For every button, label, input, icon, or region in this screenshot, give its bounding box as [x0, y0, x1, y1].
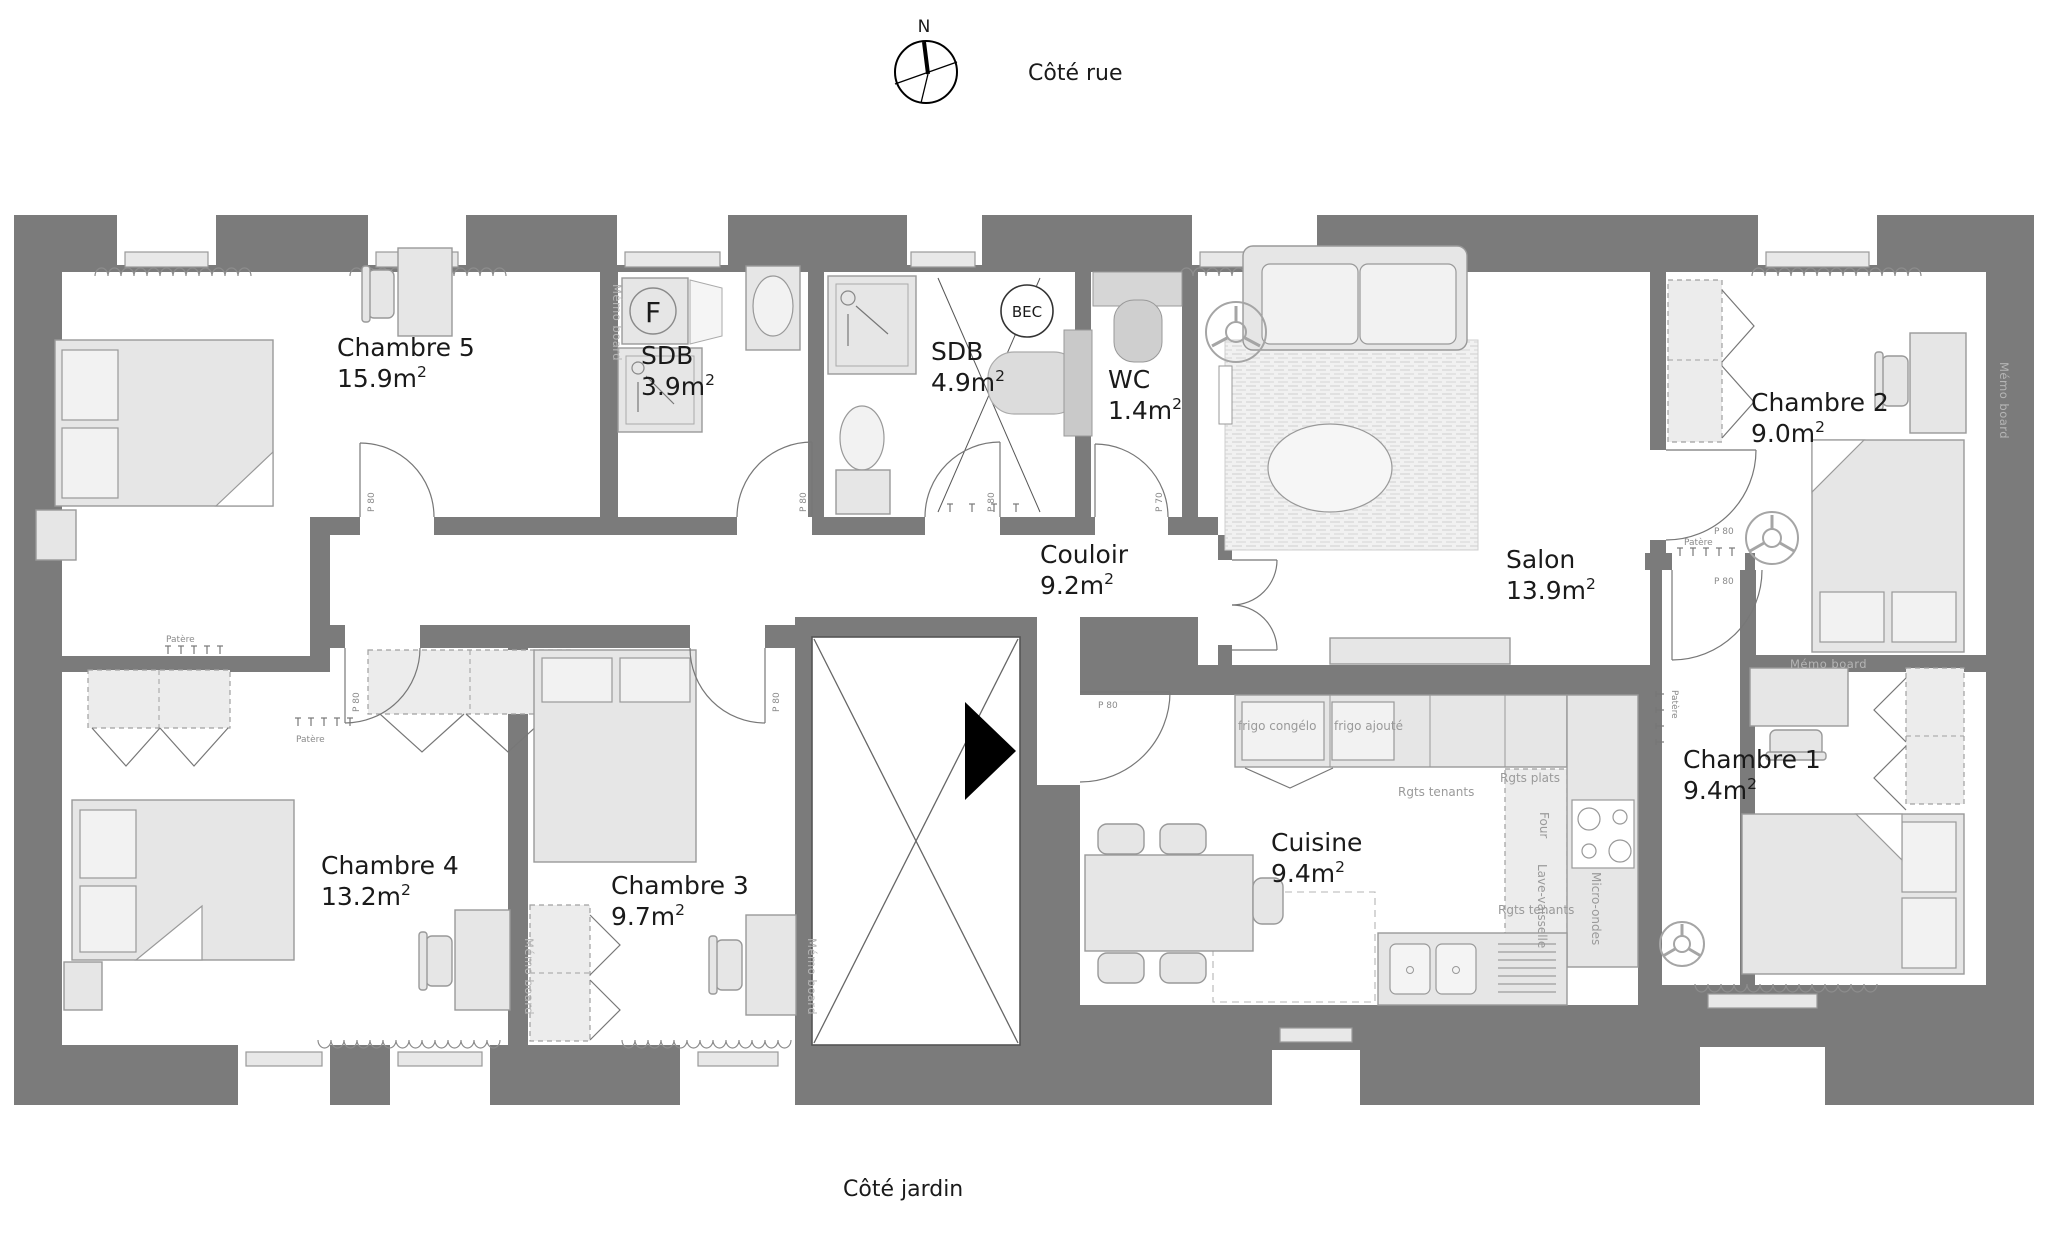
compass: N [895, 17, 957, 103]
pillow [1902, 822, 1956, 892]
area-salon: 13.9m2 [1506, 575, 1596, 605]
compass-north: N [918, 17, 931, 37]
memo-board-label: Mémo board [1997, 362, 2011, 439]
area-cuisine: 9.4m2 [1271, 858, 1345, 888]
door-size: P 80 [987, 492, 997, 512]
door-size: P 80 [1714, 577, 1734, 587]
patere-label: Patère [296, 734, 325, 745]
washer-letter: F [645, 296, 661, 329]
sink-cabinet [836, 470, 890, 514]
area-couloir: 9.2m2 [1040, 570, 1114, 600]
label-couloir: Couloir [1040, 540, 1129, 569]
label-microwave: Micro-ondes [1589, 872, 1603, 945]
garden-side-caption: Côté jardin [843, 1177, 963, 1202]
area-chambre3: 9.7m2 [611, 901, 685, 931]
label-chambre4: Chambre 4 [321, 851, 459, 880]
label-sdb2: SDB [931, 337, 983, 366]
label-fridge-freezer: frigo congélo [1238, 719, 1317, 733]
desk [398, 248, 452, 336]
label-salon: Salon [1506, 545, 1575, 574]
area-chambre5: 15.9m2 [337, 363, 427, 393]
label-sdb1: SDB [641, 341, 693, 370]
door-size: P 80 [352, 692, 362, 712]
label-cuisine: Cuisine [1271, 828, 1362, 857]
cooktop [1572, 800, 1634, 868]
sink [753, 276, 793, 336]
bec-label: BEC [1012, 303, 1042, 321]
pillow [542, 658, 612, 702]
label-fridge-added: frigo ajouté [1334, 719, 1403, 733]
label-chambre2: Chambre 2 [1751, 388, 1889, 417]
wardrobe [1668, 280, 1722, 442]
memo-board-label: Mémo board [805, 938, 819, 1015]
nightstand [36, 510, 76, 560]
pillow [620, 658, 690, 702]
label-chambre1: Chambre 1 [1683, 745, 1821, 774]
pillow [80, 810, 136, 878]
area-wc: 1.4m2 [1108, 395, 1182, 425]
label-chambre3: Chambre 3 [611, 871, 749, 900]
chair [1160, 824, 1206, 854]
patere-label: Patère [166, 634, 195, 645]
dining-table [1085, 855, 1253, 951]
patere-label: Patère [1669, 690, 1680, 719]
nightstand [64, 962, 102, 1010]
door-size: P 80 [1098, 701, 1118, 711]
street-side-caption: Côté rue [1028, 61, 1123, 86]
shower [828, 276, 916, 374]
desk [1750, 668, 1848, 726]
pillow [80, 886, 136, 952]
label-oven: Four [1537, 812, 1551, 838]
memo-board-label: Mémo board [1790, 657, 1867, 671]
pillow [62, 350, 118, 420]
label-storage-tenants: Rgts tenants [1398, 785, 1474, 799]
label-chambre5: Chambre 5 [337, 333, 475, 362]
toilet [1114, 300, 1162, 362]
sink-basin [1390, 944, 1430, 994]
chair [1160, 953, 1206, 983]
sink-basin [1436, 944, 1476, 994]
area-chambre2: 9.0m2 [1751, 418, 1825, 448]
tv-bench [1330, 638, 1510, 664]
label-storage-plates: Rgts plats [1500, 771, 1560, 785]
area-chambre4: 13.2m2 [321, 881, 411, 911]
area-sdb2: 4.9m2 [931, 367, 1005, 397]
area-chambre1: 9.4m2 [1683, 775, 1757, 805]
door-size: P 80 [799, 492, 809, 512]
desk [746, 915, 796, 1015]
chair [368, 270, 394, 318]
pillow [1902, 898, 1956, 968]
desk [455, 910, 510, 1010]
memo-board-label: Mémo board [610, 284, 624, 361]
door-size: P 80 [367, 492, 377, 512]
chair [426, 936, 452, 986]
area-sdb1: 3.9m2 [641, 371, 715, 401]
stairwell [812, 637, 1020, 1045]
door-size: P 80 [772, 692, 782, 712]
desk [1910, 333, 1966, 433]
label-storage-tenants-2: Rgts tenants [1498, 903, 1574, 917]
memo-board-label: Mémo board [522, 938, 536, 1015]
chair [1098, 953, 1144, 983]
sink [840, 406, 884, 470]
pillow [62, 428, 118, 498]
pillow [1820, 592, 1884, 642]
label-wc: WC [1108, 365, 1150, 394]
chair [1098, 824, 1144, 854]
floorplan-page: F BEC [0, 0, 2048, 1239]
patere-label: Patère [1684, 537, 1713, 548]
door-size: P 70 [1155, 492, 1165, 512]
door-size: P 80 [1714, 527, 1734, 537]
pillow [1892, 592, 1956, 642]
floorplan-svg: F BEC [0, 0, 2048, 1239]
duct [1064, 330, 1092, 436]
coffee-table [1268, 424, 1392, 512]
chair [716, 940, 742, 990]
